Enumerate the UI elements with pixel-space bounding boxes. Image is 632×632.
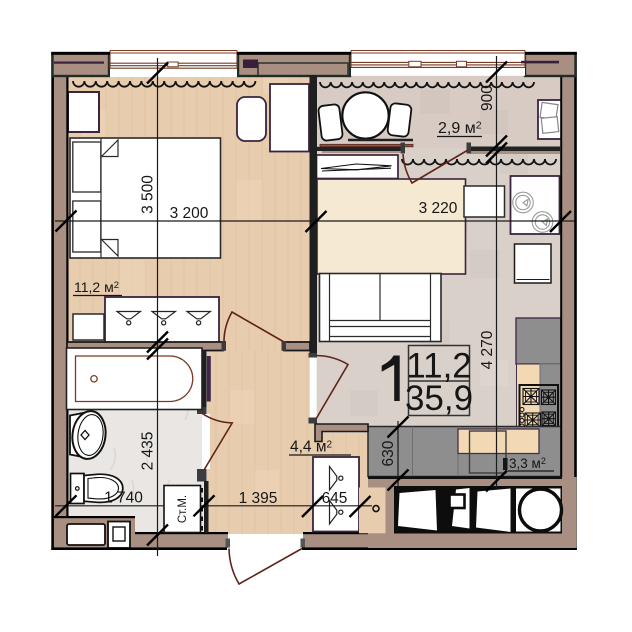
svg-text:4 270: 4 270: [479, 330, 496, 369]
svg-text:3 200: 3 200: [170, 205, 209, 222]
svg-text:Ст.М.: Ст.М.: [177, 495, 189, 523]
svg-text:11,2 м2: 11,2 м2: [74, 279, 119, 295]
svg-text:2 435: 2 435: [140, 432, 157, 471]
svg-text:1 740: 1 740: [104, 490, 143, 507]
svg-text:630: 630: [380, 440, 397, 466]
svg-text:3,3 м2: 3,3 м2: [509, 456, 546, 471]
svg-text:3 220: 3 220: [419, 200, 458, 217]
svg-text:3 500: 3 500: [140, 175, 157, 214]
svg-text:4,4 м2: 4,4 м2: [290, 439, 333, 456]
svg-text:2,9 м2: 2,9 м2: [438, 120, 482, 138]
svg-text:1 395: 1 395: [239, 490, 278, 507]
svg-text:645: 645: [322, 490, 348, 507]
svg-text:35,9: 35,9: [405, 379, 473, 418]
svg-text:900: 900: [479, 85, 496, 111]
